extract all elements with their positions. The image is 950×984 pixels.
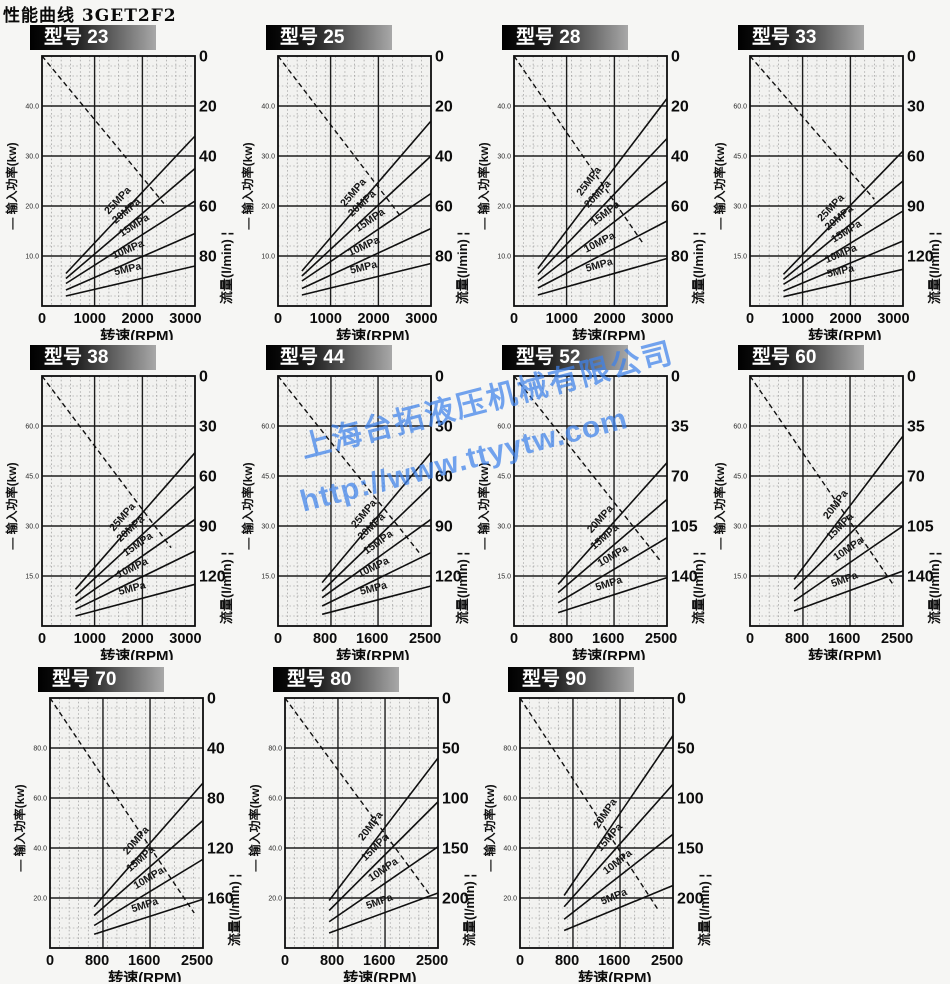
flow-tick-label: 0 [199, 369, 208, 386]
power-tick-label: 40.0 [25, 104, 39, 111]
speed-tick-label: 0 [746, 631, 754, 647]
flow-tick-label: 0 [671, 369, 680, 386]
plot-area [278, 376, 431, 626]
speed-tick-label: 2500 [416, 953, 448, 969]
flow-tick-label: 105 [671, 519, 698, 536]
speed-tick-label: 1000 [782, 311, 814, 327]
flow-tick-label: 100 [677, 791, 704, 808]
plot-area [285, 698, 438, 948]
chart-plot: 20MPa15MPa10MPa5MPa0357010514060.045.030… [708, 342, 946, 660]
chart-model-44: 型号 4425MPa20MPa15MPa10MPa5MPa03060901206… [236, 342, 474, 660]
flow-tick-label: 40 [199, 149, 217, 166]
speed-tick-label: 2000 [121, 631, 153, 647]
flow-tick-label: 80 [435, 249, 453, 266]
speed-tick-label: 2000 [357, 311, 389, 327]
chart-model-90: 型号 9020MPa15MPa10MPa5MPa05010015020080.0… [478, 664, 716, 982]
speed-tick-label: 0 [510, 311, 518, 327]
power-tick-label: 80.0 [268, 746, 282, 753]
speed-tick-label: 800 [85, 953, 109, 969]
flow-tick-label: 0 [677, 691, 686, 708]
power-tick-label: 10.0 [261, 254, 275, 261]
power-tick-label: 10.0 [25, 254, 39, 261]
power-tick-label: 45.0 [497, 474, 511, 481]
flow-tick-label: 100 [442, 791, 469, 808]
power-tick-label: 60.0 [503, 796, 517, 803]
flow-tick-label: 0 [671, 49, 680, 66]
flow-tick-label: 60 [199, 199, 217, 216]
flow-tick-label: 90 [199, 519, 217, 536]
power-tick-label: 20.0 [261, 204, 275, 211]
power-tick-label: 40.0 [497, 104, 511, 111]
flow-tick-label: 40 [207, 741, 225, 758]
power-tick-label: 60.0 [33, 796, 47, 803]
flow-axis-title: 流量(l/min) ¦ [697, 874, 712, 946]
flow-tick-label: 70 [671, 469, 689, 486]
power-tick-label: 40.0 [33, 846, 47, 853]
power-tick-label: 30.0 [497, 524, 511, 531]
chart-plot: 20MPa15MPa10MPa5MPa05010015020080.060.04… [243, 664, 481, 982]
flow-tick-label: 0 [435, 369, 444, 386]
speed-tick-label: 1000 [310, 311, 342, 327]
power-tick-label: 15.0 [733, 254, 747, 261]
flow-tick-label: 90 [907, 199, 925, 216]
flow-tick-label: 35 [671, 419, 689, 436]
flow-tick-label: 60 [435, 469, 453, 486]
flow-tick-label: 105 [907, 519, 934, 536]
power-tick-label: 10.0 [497, 254, 511, 261]
chart-plot: 25MPa20MPa15MPa10MPa5MPa030609012060.045… [236, 342, 474, 660]
chart-plot: 25MPa20MPa15MPa10MPa5MPa02040608040.030.… [472, 22, 710, 340]
flow-axis-title: 流量(l/min) ¦ [455, 232, 470, 304]
power-tick-label: 60.0 [497, 424, 511, 431]
flow-axis-title: 流量(l/min) ¦ [927, 552, 942, 624]
power-tick-label: 20.0 [497, 204, 511, 211]
power-tick-label: 15.0 [497, 574, 511, 581]
flow-tick-label: 20 [671, 99, 689, 116]
speed-tick-label: 3000 [641, 311, 673, 327]
chart-model-80: 型号 8020MPa15MPa10MPa5MPa05010015020080.0… [243, 664, 481, 982]
power-tick-label: 30.0 [497, 154, 511, 161]
power-tick-label: 30.0 [25, 524, 39, 531]
flow-tick-label: 20 [435, 99, 453, 116]
speed-tick-label: 2000 [593, 311, 625, 327]
speed-tick-label: 0 [274, 631, 282, 647]
speed-axis-title: 转速(RPM) [336, 327, 409, 340]
power-tick-label: 45.0 [733, 474, 747, 481]
flow-axis-title: 流量(l/min) ¦ [691, 232, 706, 304]
power-tick-label: 40.0 [261, 104, 275, 111]
speed-tick-label: 2500 [181, 953, 213, 969]
speed-axis-title: 转速(RPM) [108, 969, 181, 982]
plot-area [50, 698, 203, 948]
speed-tick-label: 1600 [363, 953, 395, 969]
power-tick-label: 60.0 [268, 796, 282, 803]
power-tick-label: 30.0 [733, 204, 747, 211]
chart-plot: 25MPa20MPa15MPa10MPa5MPa030609012060.045… [708, 22, 946, 340]
speed-axis-title: 转速(RPM) [572, 327, 645, 340]
chart-model-33: 型号 3325MPa20MPa15MPa10MPa5MPa03060901206… [708, 22, 946, 340]
power-tick-label: 20.0 [503, 896, 517, 903]
chart-model-52: 型号 5220MPa15MPa10MPa5MPa0357010514060.04… [472, 342, 710, 660]
power-tick-label: 80.0 [33, 746, 47, 753]
speed-tick-label: 2500 [409, 631, 441, 647]
flow-tick-label: 60 [907, 149, 925, 166]
power-tick-label: 15.0 [261, 574, 275, 581]
speed-tick-label: 3000 [169, 311, 201, 327]
speed-tick-label: 3000 [405, 311, 437, 327]
flow-tick-label: 60 [671, 199, 689, 216]
flow-tick-label: 90 [435, 519, 453, 536]
power-tick-label: 15.0 [733, 574, 747, 581]
speed-tick-label: 0 [281, 953, 289, 969]
flow-tick-label: 60 [435, 199, 453, 216]
flow-axis-title: 流量(l/min) ¦ [219, 232, 234, 304]
flow-axis-title: 流量(l/min) ¦ [691, 552, 706, 624]
speed-axis-title: 转速(RPM) [578, 969, 651, 982]
flow-tick-label: 150 [677, 841, 704, 858]
speed-tick-label: 0 [516, 953, 524, 969]
speed-tick-label: 0 [510, 631, 518, 647]
speed-tick-label: 800 [785, 631, 809, 647]
speed-tick-label: 1600 [592, 631, 624, 647]
speed-tick-label: 800 [549, 631, 573, 647]
flow-tick-label: 0 [199, 49, 208, 66]
speed-tick-label: 0 [746, 311, 754, 327]
flow-axis-title: 流量(l/min) ¦ [462, 874, 477, 946]
speed-tick-label: 1600 [828, 631, 860, 647]
speed-tick-label: 3000 [877, 311, 909, 327]
speed-tick-label: 0 [46, 953, 54, 969]
speed-tick-label: 1000 [546, 311, 578, 327]
flow-tick-label: 50 [442, 741, 460, 758]
speed-tick-label: 2000 [121, 311, 153, 327]
power-tick-label: 60.0 [733, 104, 747, 111]
flow-tick-label: 150 [442, 841, 469, 858]
chart-plot: 25MPa20MPa15MPa10MPa5MPa02040608040.030.… [236, 22, 474, 340]
power-tick-label: 30.0 [25, 154, 39, 161]
chart-plot: 20MPa15MPa10MPa5MPa0408012016080.060.040… [8, 664, 246, 982]
flow-tick-label: 80 [199, 249, 217, 266]
chart-plot: 25MPa20MPa15MPa10MPa5MPa030609012060.045… [0, 342, 238, 660]
flow-tick-label: 30 [435, 419, 453, 436]
speed-tick-label: 0 [274, 311, 282, 327]
chart-plot: 20MPa15MPa10MPa5MPa0357010514060.045.030… [472, 342, 710, 660]
speed-tick-label: 1600 [128, 953, 160, 969]
flow-tick-label: 60 [199, 469, 217, 486]
power-tick-label: 20.0 [268, 896, 282, 903]
speed-axis-title: 转速(RPM) [336, 647, 409, 660]
speed-tick-label: 2500 [651, 953, 683, 969]
speed-tick-label: 800 [313, 631, 337, 647]
power-tick-label: 20.0 [25, 204, 39, 211]
plot-area [514, 376, 667, 626]
speed-tick-label: 3000 [169, 631, 201, 647]
speed-tick-label: 800 [320, 953, 344, 969]
power-tick-label: 45.0 [261, 474, 275, 481]
power-tick-label: 30.0 [733, 524, 747, 531]
power-tick-label: 45.0 [733, 154, 747, 161]
chart-model-70: 型号 7020MPa15MPa10MPa5MPa0408012016080.06… [8, 664, 246, 982]
speed-tick-label: 800 [555, 953, 579, 969]
speed-tick-label: 1600 [356, 631, 388, 647]
speed-tick-label: 1600 [598, 953, 630, 969]
flow-tick-label: 40 [671, 149, 689, 166]
chart-model-23: 型号 2325MPa20MPa15MPa10MPa5MPa02040608040… [0, 22, 238, 340]
flow-axis-title: 流量(l/min) ¦ [219, 552, 234, 624]
power-tick-label: 30.0 [261, 524, 275, 531]
flow-tick-label: 80 [671, 249, 689, 266]
speed-tick-label: 0 [38, 631, 46, 647]
speed-tick-label: 1000 [74, 311, 106, 327]
speed-axis-title: 转速(RPM) [808, 327, 881, 340]
flow-axis-title: 流量(l/min) ¦ [455, 552, 470, 624]
power-tick-label: 60.0 [733, 424, 747, 431]
power-axis-title: — 输入功率(kw) [240, 462, 255, 549]
power-axis-title: — 输入功率(kw) [712, 462, 727, 549]
speed-axis-title: 转速(RPM) [572, 647, 645, 660]
power-axis-title: — 输入功率(kw) [712, 142, 727, 229]
flow-tick-label: 30 [199, 419, 217, 436]
speed-axis-title: 转速(RPM) [100, 647, 173, 660]
power-axis-title: — 输入功率(kw) [476, 142, 491, 229]
flow-tick-label: 120 [207, 841, 234, 858]
flow-tick-label: 35 [907, 419, 925, 436]
speed-tick-label: 0 [38, 311, 46, 327]
power-axis-title: — 输入功率(kw) [476, 462, 491, 549]
power-axis-title: — 输入功率(kw) [4, 462, 19, 549]
speed-axis-title: 转速(RPM) [100, 327, 173, 340]
flow-tick-label: 70 [907, 469, 925, 486]
power-axis-title: — 输入功率(kw) [247, 784, 262, 871]
chart-model-25: 型号 2525MPa20MPa15MPa10MPa5MPa02040608040… [236, 22, 474, 340]
flow-tick-label: 0 [442, 691, 451, 708]
speed-axis-title: 转速(RPM) [343, 969, 416, 982]
plot-area [750, 376, 903, 626]
performance-curves-page: 性能曲线 3GET2F2 型号 2325MPa20MPa15MPa10MPa5M… [0, 0, 950, 984]
flow-tick-label: 0 [207, 691, 216, 708]
chart-plot: 20MPa15MPa10MPa5MPa05010015020080.060.04… [478, 664, 716, 982]
speed-tick-label: 1000 [74, 631, 106, 647]
flow-tick-label: 0 [435, 49, 444, 66]
power-tick-label: 15.0 [25, 574, 39, 581]
flow-tick-label: 20 [199, 99, 217, 116]
chart-model-60: 型号 6020MPa15MPa10MPa5MPa0357010514060.04… [708, 342, 946, 660]
power-axis-title: — 输入功率(kw) [12, 784, 27, 871]
chart-plot: 25MPa20MPa15MPa10MPa5MPa02040608040.030.… [0, 22, 238, 340]
power-tick-label: 80.0 [503, 746, 517, 753]
flow-tick-label: 80 [207, 791, 225, 808]
power-axis-title: — 输入功率(kw) [240, 142, 255, 229]
power-tick-label: 45.0 [25, 474, 39, 481]
flow-tick-label: 0 [907, 49, 916, 66]
flow-tick-label: 30 [907, 99, 925, 116]
power-tick-label: 60.0 [25, 424, 39, 431]
flow-tick-label: 40 [435, 149, 453, 166]
flow-tick-label: 0 [907, 369, 916, 386]
power-axis-title: — 输入功率(kw) [482, 784, 497, 871]
flow-tick-label: 50 [677, 741, 695, 758]
power-tick-label: 60.0 [261, 424, 275, 431]
flow-axis-title: 流量(l/min) ¦ [227, 874, 242, 946]
flow-axis-title: 流量(l/min) ¦ [927, 232, 942, 304]
power-tick-label: 40.0 [503, 846, 517, 853]
speed-tick-label: 2500 [881, 631, 913, 647]
speed-axis-title: 转速(RPM) [808, 647, 881, 660]
speed-tick-label: 2000 [829, 311, 861, 327]
power-tick-label: 40.0 [268, 846, 282, 853]
chart-model-28: 型号 2825MPa20MPa15MPa10MPa5MPa02040608040… [472, 22, 710, 340]
chart-model-38: 型号 3825MPa20MPa15MPa10MPa5MPa03060901206… [0, 342, 238, 660]
power-axis-title: — 输入功率(kw) [4, 142, 19, 229]
power-tick-label: 30.0 [261, 154, 275, 161]
speed-tick-label: 2500 [645, 631, 677, 647]
power-tick-label: 20.0 [33, 896, 47, 903]
